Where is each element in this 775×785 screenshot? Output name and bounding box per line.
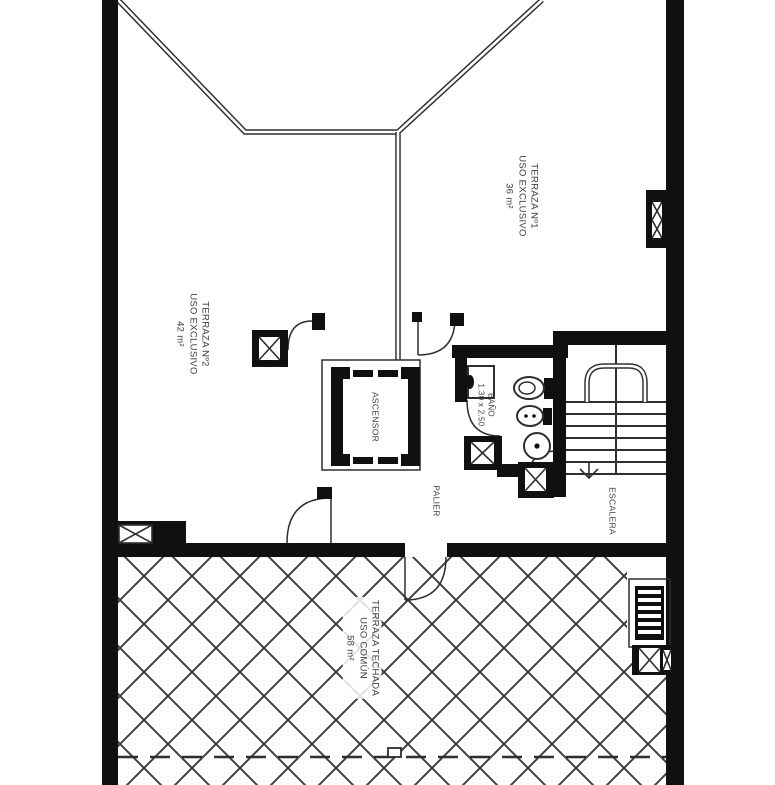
column-terraza2 <box>252 330 288 367</box>
door-post <box>312 313 325 330</box>
terraza-1-name: TERRAZA Nº1 <box>527 155 539 237</box>
duct-box-icon <box>632 645 674 675</box>
terraza-2-label: TERRAZA Nº2 USO EXCLUSIVO 42 m² <box>173 293 210 375</box>
stair-direction-arrow <box>580 462 598 478</box>
terraza-1-area: 36 m² <box>502 155 514 237</box>
drain-icon <box>524 433 550 459</box>
terraza-1-label: TERRAZA Nº1 USO EXCLUSIVO 36 m² <box>502 155 539 237</box>
escalera-label: ESCALERA <box>606 487 617 535</box>
terraza-techada-area: 58 m² <box>343 600 355 696</box>
stair-top-wall <box>553 331 684 345</box>
ascensor-label: ASCENSOR <box>369 392 380 442</box>
mid-wall-right <box>447 543 684 557</box>
outer-wall-left <box>102 0 118 785</box>
bathroom-left-wall <box>455 352 467 402</box>
terraza-2-area: 42 m² <box>173 293 185 375</box>
terraza-techada-label: TERRAZA TECHADA USO COMÚN 58 m² <box>342 597 381 699</box>
stairs <box>566 345 666 478</box>
door-post <box>450 313 464 326</box>
toilet-icon <box>514 377 553 399</box>
column-bathroom-right <box>518 462 554 498</box>
palier-label: PALIER <box>430 485 441 516</box>
terraza-techada-name: TERRAZA TECHADA <box>368 600 380 696</box>
column-mid-wall <box>119 525 152 543</box>
bano-dimensions: 1.30 x 2.50 <box>475 384 485 427</box>
column-bathroom-left <box>464 436 502 470</box>
vent-right-wall-icon <box>646 190 668 248</box>
door-post <box>412 312 422 322</box>
terraza-2-use: USO EXCLUSIVO <box>186 293 198 375</box>
bano-label: BAÑO 1.30 x 2.50 <box>475 384 496 427</box>
door-post <box>317 487 332 499</box>
bano-name: BAÑO <box>485 384 495 427</box>
stair-left-wall <box>553 331 566 497</box>
terraza-2-name: TERRAZA Nº2 <box>198 293 210 375</box>
floor-plan: TERRAZA Nº1 USO EXCLUSIVO 36 m² TERRAZA … <box>0 0 775 785</box>
floor-plan-drawing <box>0 0 775 785</box>
terraza-techada-use: USO COMÚN <box>356 600 368 696</box>
louver-vent-icon <box>629 579 670 647</box>
bidet-icon <box>517 406 552 426</box>
bathroom-top-wall <box>452 345 568 358</box>
terraza-1-use: USO EXCLUSIVO <box>515 155 527 237</box>
